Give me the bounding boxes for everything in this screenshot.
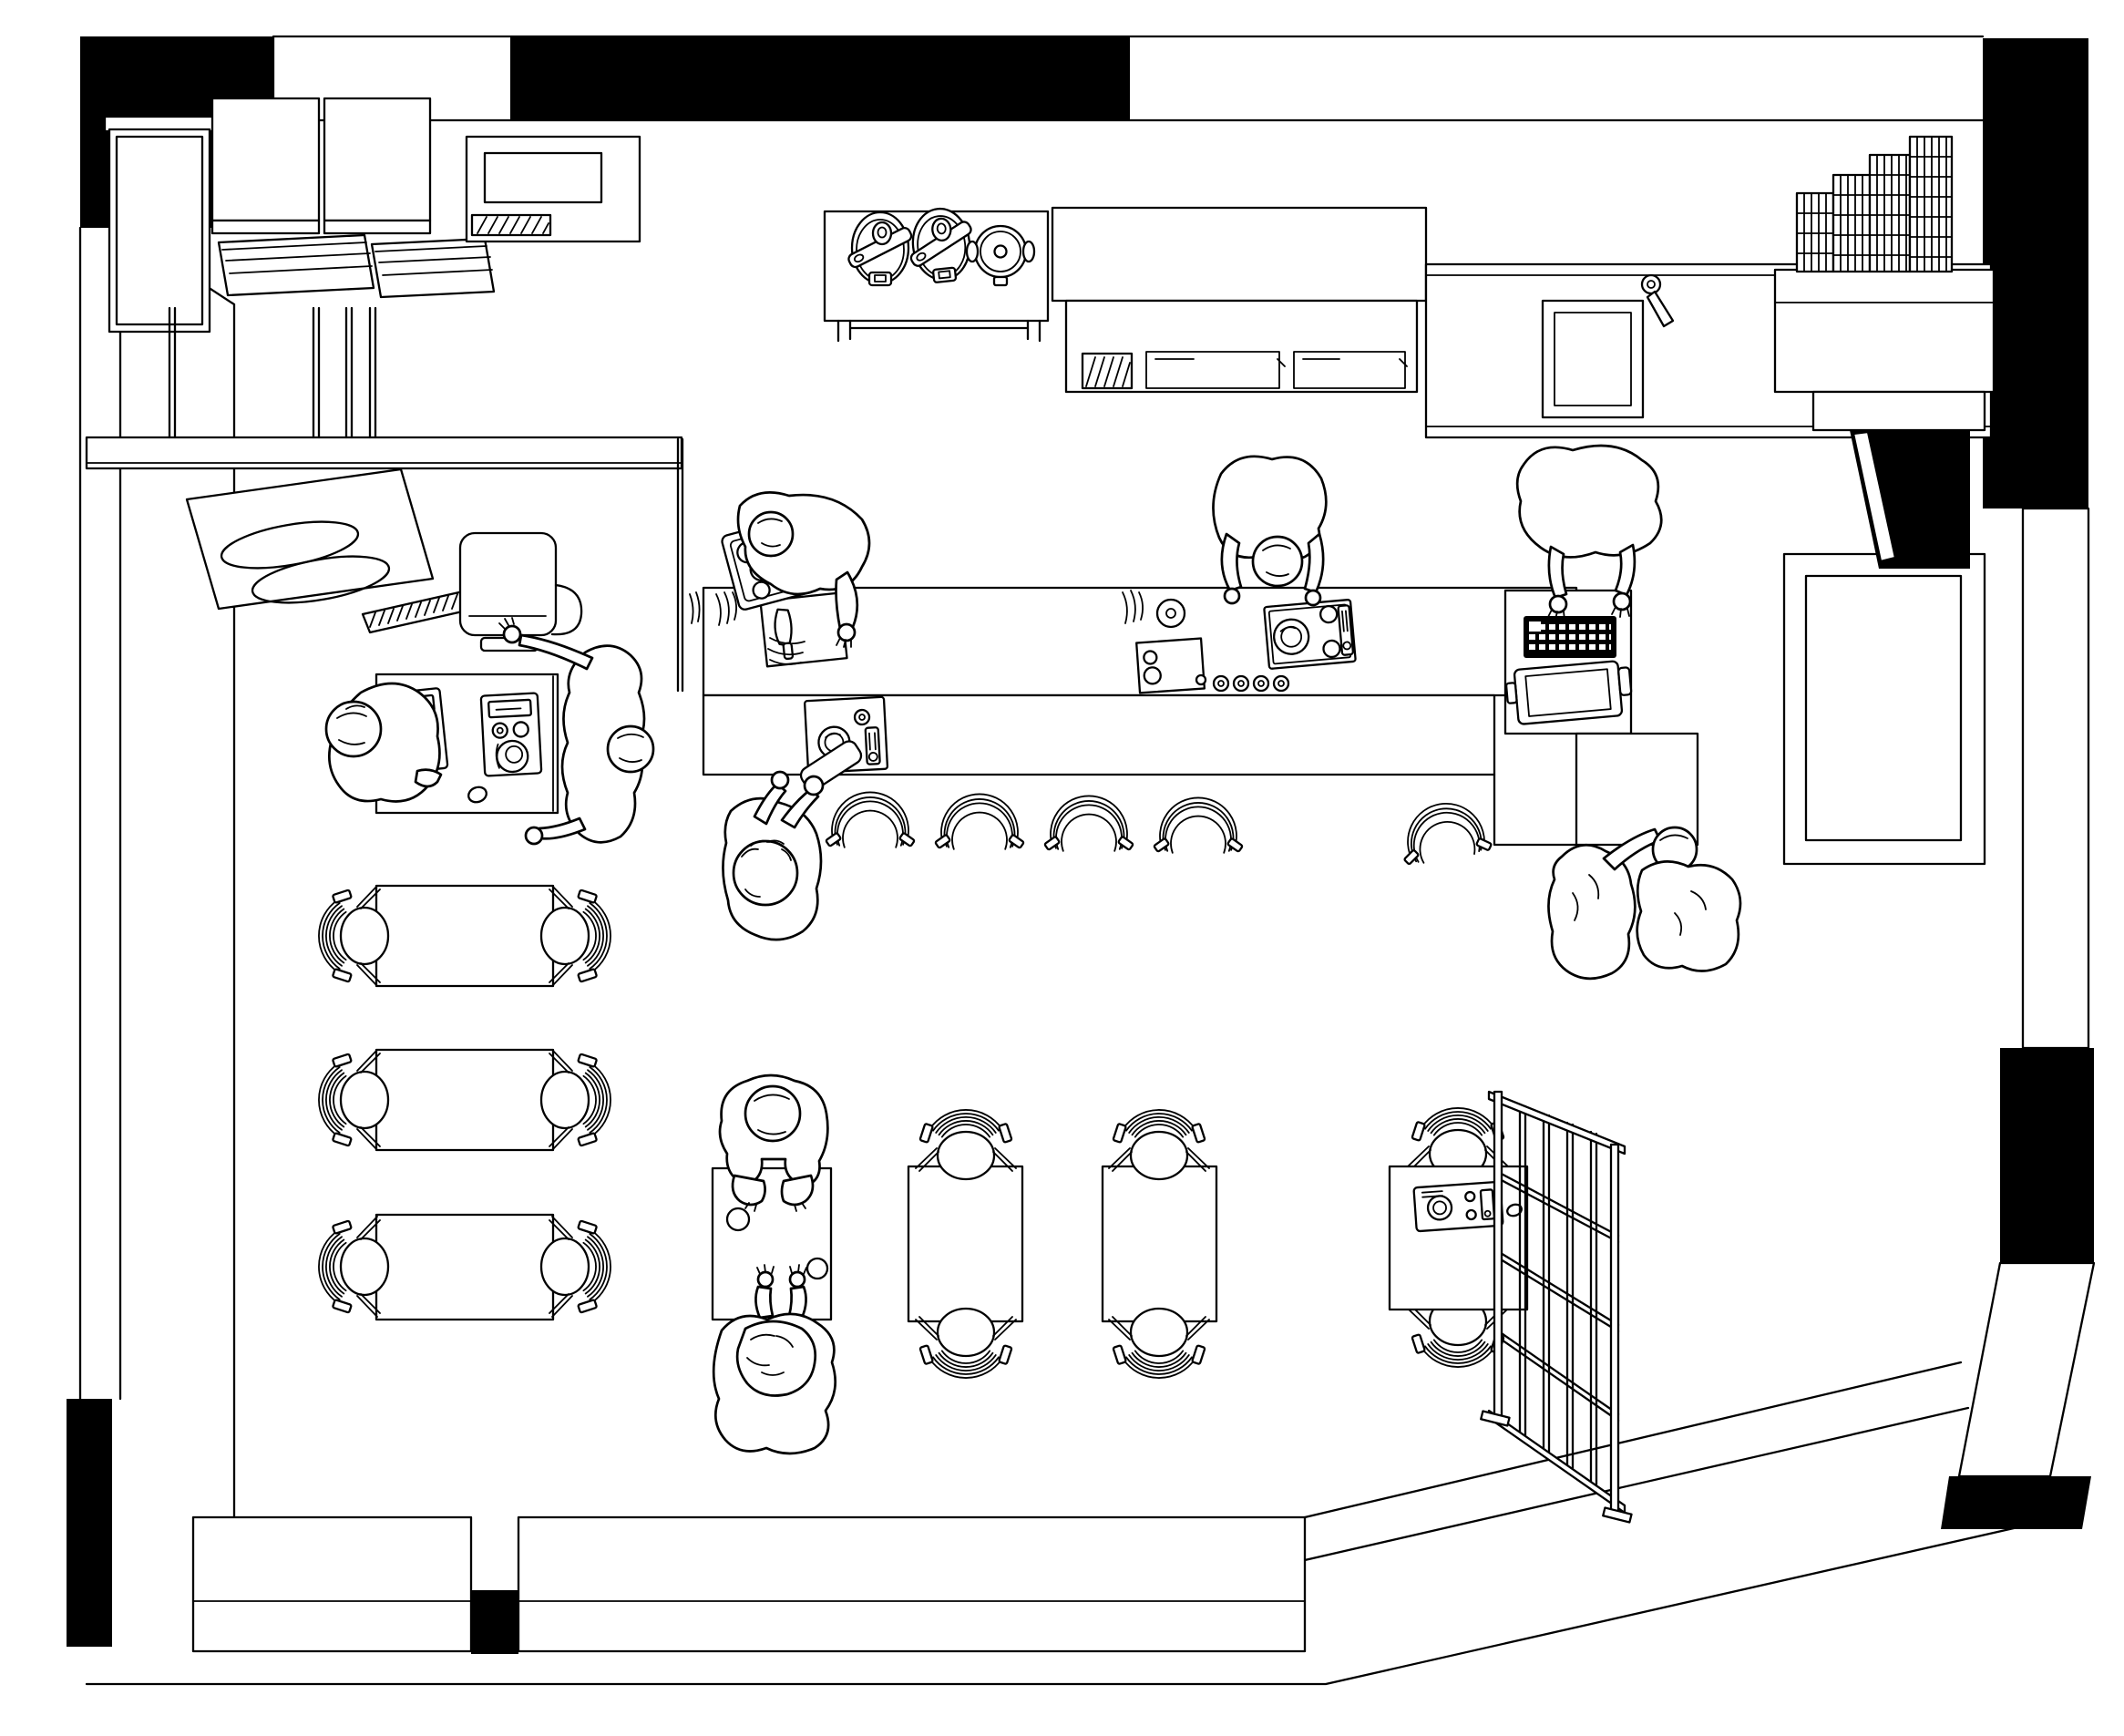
rice-cooker-table xyxy=(825,205,1048,341)
small-tray xyxy=(1136,639,1205,693)
table-middle-2 xyxy=(1103,1110,1216,1378)
island-hob xyxy=(1264,600,1356,669)
right-wall xyxy=(2023,508,2088,1048)
donut-plate xyxy=(1157,600,1185,627)
wall-pier-bottom-right xyxy=(1941,1476,2091,1529)
vented-appliance xyxy=(467,137,640,241)
espresso-machine-2 xyxy=(481,693,542,776)
doorway xyxy=(1813,392,1985,569)
wire-crate-stack-1 xyxy=(1797,193,1833,272)
pos-screen-tray xyxy=(1505,660,1634,725)
table-right xyxy=(1390,1108,1527,1367)
person-barista-left xyxy=(326,683,441,801)
window-bay xyxy=(1784,554,1985,864)
right-lower-wall xyxy=(1959,1263,2094,1476)
wire-crate-stack-3 xyxy=(1870,155,1910,272)
table-middle-1 xyxy=(908,1110,1022,1378)
person-customer-couple-2 xyxy=(1637,827,1740,971)
wall-pier-bottom-center xyxy=(471,1590,518,1654)
floor-mark xyxy=(690,592,700,623)
wall-pier-bottom-left xyxy=(67,1399,112,1647)
wall-box-cabinets xyxy=(212,98,494,297)
worktop-fridge xyxy=(1052,208,1426,392)
dining-tables xyxy=(319,886,1527,1378)
wall-band-top xyxy=(510,36,1130,120)
tall-cabinet xyxy=(105,117,214,332)
person-staff-bowing xyxy=(1213,457,1326,605)
wall-pier-right xyxy=(2000,1048,2094,1263)
floor-plan-drawing xyxy=(0,0,2124,1736)
sink-basin xyxy=(1543,301,1643,417)
table-left-3 xyxy=(319,1215,611,1320)
pos-terminal xyxy=(1505,591,1698,845)
cutting-board xyxy=(760,592,847,666)
bar-stools xyxy=(826,792,1493,866)
window-benches xyxy=(193,1517,1305,1654)
table-left-2 xyxy=(319,1050,611,1150)
wire-crate-stack-4 xyxy=(1910,137,1952,272)
table-left-1 xyxy=(319,886,611,986)
drawing-canvas xyxy=(0,0,2124,1736)
wall-band-right-top xyxy=(1983,38,2088,508)
tabletop-grill xyxy=(1413,1182,1503,1232)
wire-crate-stack-2 xyxy=(1833,175,1870,272)
